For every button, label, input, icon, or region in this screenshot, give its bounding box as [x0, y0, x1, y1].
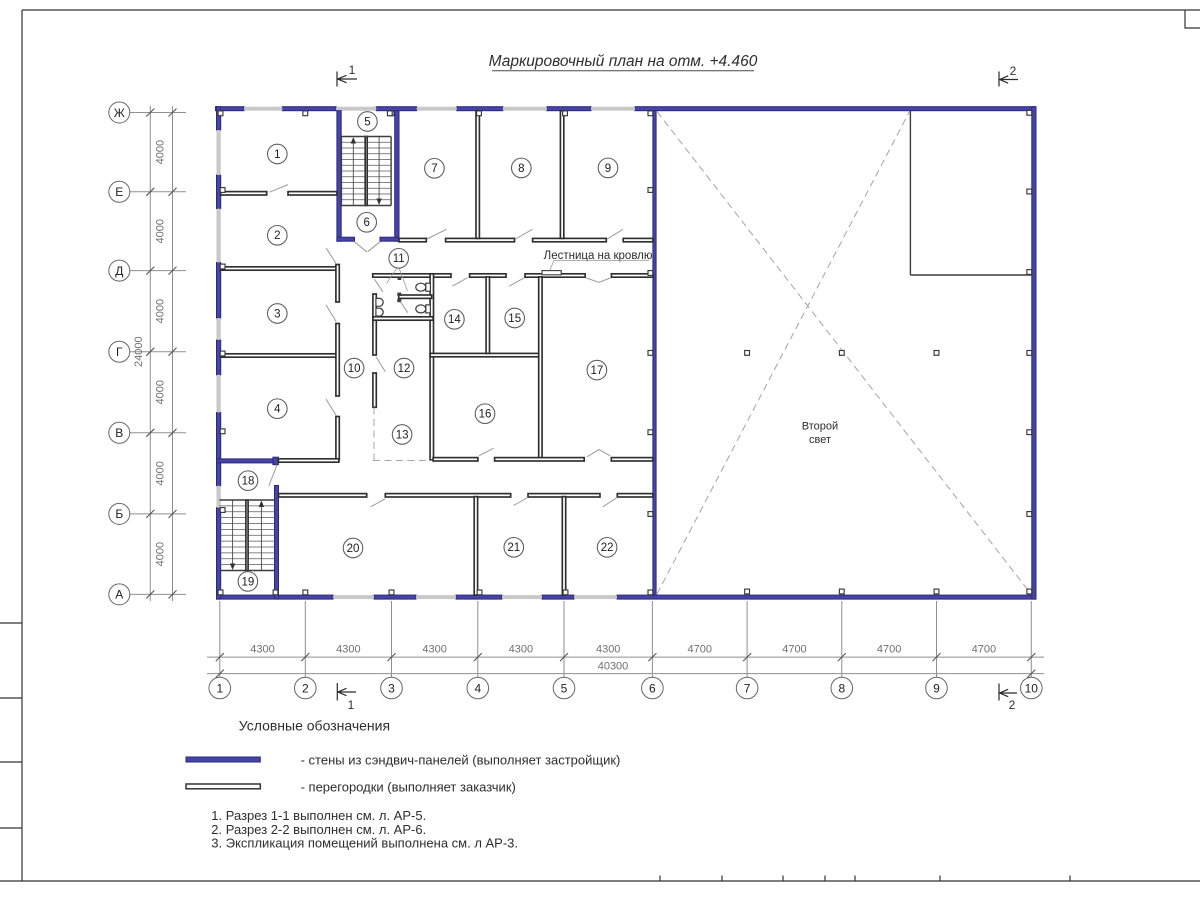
svg-text:1. Разрез 1-1 выполнен см. л.: 1. Разрез 1-1 выполнен см. л. АР-5.	[211, 808, 426, 823]
svg-text:18: 18	[242, 476, 255, 488]
svg-text:7: 7	[431, 163, 437, 175]
svg-text:16: 16	[479, 409, 492, 421]
svg-text:2: 2	[302, 681, 309, 695]
svg-text:Е: Е	[115, 185, 123, 199]
svg-text:1: 1	[348, 698, 355, 712]
svg-text:Б: Б	[115, 507, 123, 521]
svg-text:12: 12	[398, 363, 411, 375]
svg-text:4: 4	[474, 681, 481, 695]
svg-text:1: 1	[349, 63, 356, 77]
svg-text:2: 2	[1009, 698, 1016, 712]
svg-text:3: 3	[274, 308, 280, 320]
svg-text:15: 15	[508, 313, 521, 325]
svg-text:11: 11	[393, 253, 405, 265]
svg-text:4000: 4000	[155, 380, 167, 404]
svg-text:А: А	[115, 588, 123, 602]
svg-text:10: 10	[1025, 681, 1039, 695]
svg-text:4000: 4000	[155, 140, 167, 164]
svg-text:Ж: Ж	[114, 106, 125, 120]
svg-text:4300: 4300	[336, 644, 360, 656]
svg-text:6: 6	[363, 217, 369, 229]
svg-text:4700: 4700	[688, 644, 712, 656]
svg-text:Г: Г	[116, 345, 123, 359]
svg-text:1: 1	[216, 681, 223, 695]
svg-text:21: 21	[507, 542, 520, 554]
svg-text:В: В	[115, 426, 123, 440]
svg-text:4300: 4300	[596, 644, 620, 656]
svg-text:3: 3	[388, 681, 395, 695]
svg-text:8: 8	[518, 163, 524, 175]
svg-text:9: 9	[933, 681, 940, 695]
svg-text:4000: 4000	[155, 461, 167, 485]
svg-text:свет: свет	[809, 434, 831, 446]
svg-text:4700: 4700	[782, 644, 806, 656]
svg-text:- стены из сэндвич-панелей (вы: - стены из сэндвич-панелей (выполняет за…	[301, 753, 621, 768]
svg-text:40300: 40300	[598, 661, 629, 673]
svg-text:9: 9	[605, 163, 611, 175]
svg-text:20: 20	[347, 543, 360, 555]
svg-text:Условные обозначения: Условные обозначения	[239, 718, 390, 734]
svg-text:5: 5	[561, 681, 568, 695]
svg-text:17: 17	[591, 365, 604, 377]
svg-text:Д: Д	[115, 264, 123, 278]
svg-text:4300: 4300	[422, 644, 446, 656]
svg-text:2: 2	[274, 230, 280, 242]
svg-text:14: 14	[448, 314, 461, 326]
svg-text:2. Разрез 2-2 выполнен см. л.: 2. Разрез 2-2 выполнен см. л. АР-6.	[211, 822, 426, 837]
svg-text:4000: 4000	[155, 299, 167, 323]
svg-text:4300: 4300	[250, 644, 274, 656]
svg-text:3. Экспликация помещений выпол: 3. Экспликация помещений выполнена см. л…	[211, 836, 518, 851]
svg-text:6: 6	[649, 681, 656, 695]
svg-text:2: 2	[1010, 64, 1017, 78]
svg-text:24000: 24000	[133, 336, 145, 367]
svg-text:1: 1	[274, 149, 280, 161]
svg-text:13: 13	[396, 429, 409, 441]
svg-text:4300: 4300	[509, 644, 533, 656]
svg-text:8: 8	[838, 681, 845, 695]
svg-text:22: 22	[601, 542, 614, 554]
svg-text:Маркировочный план на отм. +4.: Маркировочный план на отм. +4.460	[489, 53, 758, 70]
svg-text:4700: 4700	[972, 644, 996, 656]
svg-text:4: 4	[274, 404, 281, 416]
svg-text:19: 19	[242, 576, 255, 588]
svg-text:4000: 4000	[155, 542, 167, 566]
svg-text:4000: 4000	[155, 219, 167, 243]
svg-text:- перегородки (выполняет заказ: - перегородки (выполняет заказчик)	[301, 780, 516, 795]
svg-text:Второй: Второй	[802, 421, 838, 433]
svg-text:5: 5	[364, 116, 370, 128]
svg-text:7: 7	[744, 681, 751, 695]
svg-text:4700: 4700	[877, 644, 901, 656]
svg-text:10: 10	[348, 363, 361, 375]
